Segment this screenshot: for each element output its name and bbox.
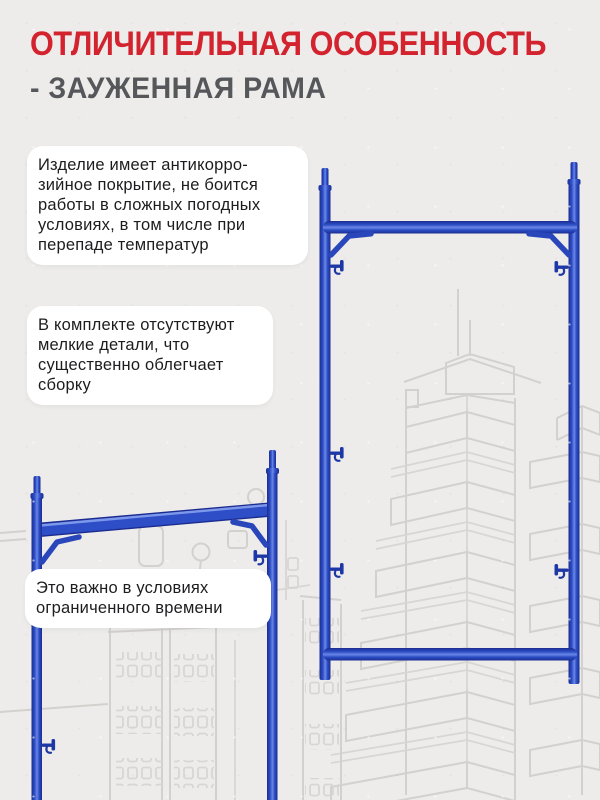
header: ОТЛИЧИТЕЛЬНАЯ ОСОБЕННОСТЬ - ЗАУЖЕННАЯ РА… (30, 25, 600, 106)
feature-callout-1: Изделие имеет антикорро- зийное покрытие… (27, 146, 308, 265)
frame-gusset (331, 234, 371, 255)
frame-crossbar (32, 498, 278, 543)
frame-crossbar (320, 646, 580, 664)
frame-gusset (42, 537, 79, 562)
frame-gusset (233, 522, 266, 545)
frame-gusset (529, 234, 569, 255)
flag-hook (42, 739, 56, 753)
flag-hook (254, 550, 268, 564)
page-title: ОТЛИЧИТЕЛЬНАЯ ОСОБЕННОСТЬ (30, 25, 546, 63)
feature-callout-2: В комплекте отсутствуют мелкие детали, ч… (27, 306, 273, 405)
flag-hook (330, 260, 344, 274)
flag-hook (555, 261, 569, 275)
feature-callout-3: Это важно в условиях ограниченного време… (25, 569, 271, 628)
feature-callout-2-text: В комплекте отсутствуют мелкие детали, ч… (38, 315, 259, 395)
feature-callout-1-text: Изделие имеет антикорро- зийное покрытие… (38, 155, 294, 255)
promo-image: ОТЛИЧИТЕЛЬНАЯ ОСОБЕННОСТЬ - ЗАУЖЕННАЯ РА… (0, 0, 600, 800)
frame-post (319, 168, 332, 680)
page-subtitle: - ЗАУЖЕННАЯ РАМА (30, 72, 575, 106)
flag-hook (330, 563, 344, 577)
frame-crossbar (320, 220, 580, 244)
flag-hook (555, 564, 569, 578)
scaffold-frame-main (319, 162, 581, 684)
flag-hook (330, 447, 344, 461)
feature-callout-3-text: Это важно в условиях ограниченного време… (36, 578, 257, 618)
